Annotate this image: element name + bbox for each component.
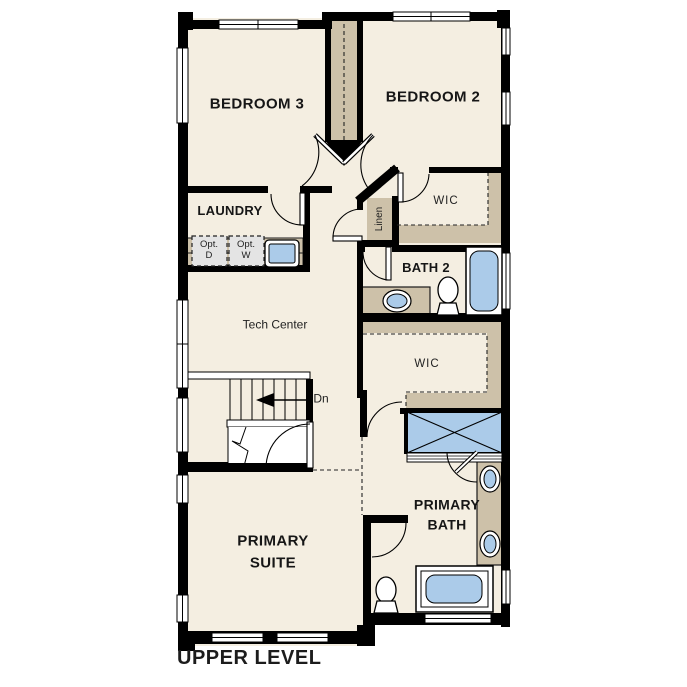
primary-tub — [416, 566, 493, 612]
window — [502, 570, 510, 604]
primary-sink-2 — [480, 531, 500, 557]
wic-upper-shelf-bottom — [397, 225, 505, 243]
window — [425, 614, 491, 623]
window — [177, 475, 188, 503]
shower — [407, 412, 502, 462]
wic-lower-shelf-bottom — [406, 393, 503, 408]
opt-washer-box — [229, 236, 264, 266]
window — [177, 48, 188, 123]
opt-dryer-box — [192, 236, 227, 266]
window — [277, 633, 328, 642]
window — [177, 595, 188, 622]
plan-title: UPPER LEVEL — [177, 647, 321, 670]
window — [502, 92, 510, 125]
window — [219, 20, 298, 29]
floor-plan-drawing — [0, 0, 687, 687]
window — [393, 12, 470, 21]
wic-lower-shelf-right — [487, 333, 503, 393]
window — [212, 633, 263, 642]
bath2-sink — [383, 290, 411, 312]
bath2-toilet — [437, 277, 459, 315]
linen-closet — [367, 198, 393, 240]
stairwell-void — [228, 427, 308, 463]
window — [177, 398, 188, 452]
primary-sink-1 — [480, 466, 500, 492]
window — [177, 300, 188, 388]
floor-plan: BEDROOM 3 BEDROOM 2 LAUNDRY WIC Linen BA… — [0, 0, 687, 687]
window — [502, 28, 510, 55]
bath2-tub — [466, 247, 502, 315]
primary-toilet — [374, 577, 398, 613]
window — [502, 253, 510, 309]
laundry-sink — [265, 240, 299, 267]
